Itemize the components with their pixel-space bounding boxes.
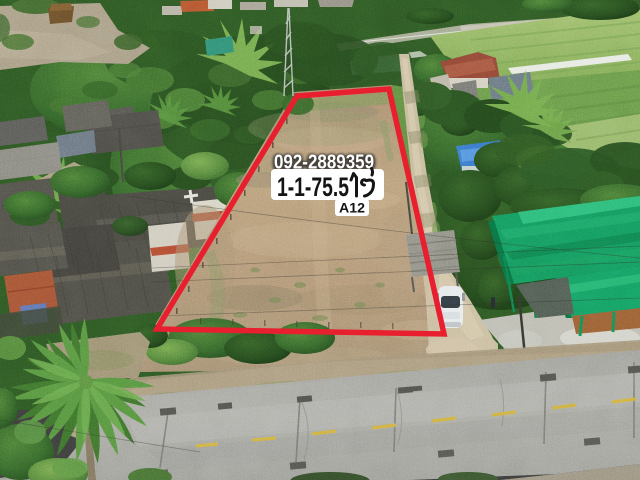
svg-text:A12: A12	[339, 200, 365, 216]
svg-text:1-1-75.5: 1-1-75.5	[277, 172, 349, 202]
